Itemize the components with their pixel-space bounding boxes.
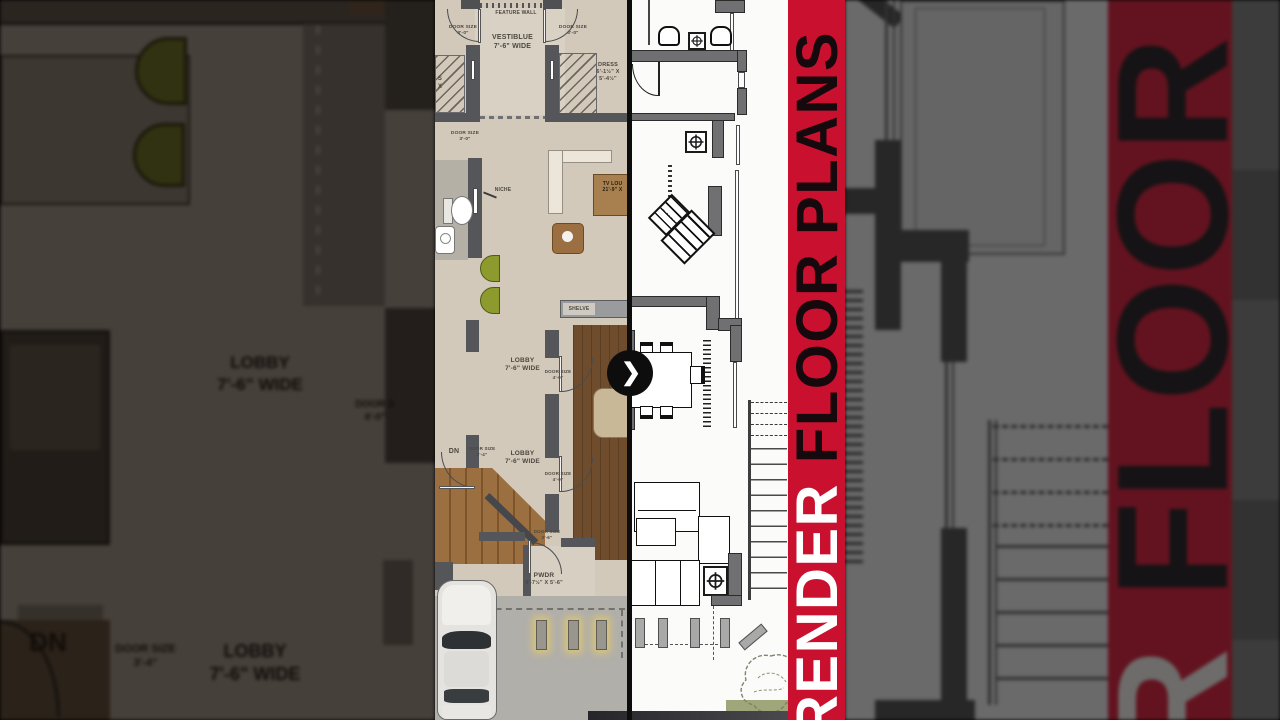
car-hood	[442, 585, 491, 625]
background-right: RFLOOR	[845, 0, 1280, 720]
wall-segment	[545, 494, 559, 532]
banner-word-floor-plans: FLOOR PLANS	[788, 31, 845, 463]
label-line: 6'-1½" X	[587, 69, 629, 76]
wall-segment	[715, 0, 745, 13]
window	[733, 362, 737, 428]
car-windshield	[442, 631, 491, 649]
car-rear-window	[444, 689, 489, 703]
label-line: 7'-6" WIDE	[495, 458, 550, 466]
room-label-lobby: LOBBY 7'-6" WIDE	[495, 450, 550, 466]
window	[550, 60, 554, 80]
wall-segment	[711, 595, 742, 606]
background-left: LOBBY 7'-6" WIDE DOOR S 4'-0" DN DOOR SI…	[0, 0, 435, 720]
darken-overlay	[0, 0, 435, 720]
driveway-line	[621, 610, 623, 658]
label-line: PWDR	[515, 572, 573, 580]
lane-marker	[690, 618, 700, 648]
video-frame: LOBBY 7'-6" WIDE DOOR S 4'-0" DN DOOR SI…	[0, 0, 1280, 720]
door-leaf	[658, 62, 660, 96]
render-banner: RENDERFLOOR PLANS	[788, 0, 845, 720]
chair	[710, 26, 732, 46]
dining-chair	[690, 366, 705, 384]
hatched-wall	[703, 340, 711, 428]
label-line: DRESS	[587, 62, 629, 69]
label-line: 3'-0"	[445, 31, 481, 37]
room-label-pwdr: PWDR 4'-7½" X 5'-6"	[515, 572, 573, 587]
wall-segment	[461, 0, 480, 9]
banner-text: RENDERFLOOR PLANS	[791, 31, 845, 720]
sofa	[548, 150, 563, 214]
door-size-label: DOOR SIZE 4'-0"	[543, 369, 573, 380]
door-size-label: DOOR SIZE 3'-0"	[555, 25, 591, 37]
door-size-label: DOOR SIZE 2'-6"	[531, 529, 563, 540]
chair	[658, 26, 680, 46]
driveway-line	[640, 644, 718, 645]
label-line: X	[435, 84, 445, 92]
lane-marker	[720, 618, 730, 648]
door-leaf	[528, 540, 531, 574]
cad-floor-plan[interactable]	[630, 0, 788, 720]
label-line: DOOR SIZE	[543, 369, 573, 375]
rendered-floor-plan[interactable]: FEATURE WALL DOOR SIZE 3'-0" DOOR SIZE 3…	[435, 0, 630, 720]
sofa-line	[638, 510, 696, 511]
tree	[736, 648, 788, 720]
chaise	[698, 516, 730, 564]
driveway-line	[475, 608, 625, 610]
slider-button[interactable]: ❯	[607, 350, 653, 396]
feature-wall	[480, 3, 543, 8]
sofa-cushion	[630, 560, 656, 606]
wall-segment	[545, 113, 630, 122]
wall-segment	[730, 325, 742, 362]
wall-segment	[435, 113, 480, 122]
wall-segment	[543, 0, 562, 9]
car-roof	[444, 651, 489, 687]
driveway-line	[713, 606, 714, 660]
green-chair	[480, 287, 500, 314]
window	[736, 125, 740, 165]
room-label-lobby: LOBBY 7'-6" WIDE	[495, 357, 550, 373]
label-line: S	[435, 76, 445, 84]
ceiling-fan-symbol	[703, 566, 728, 596]
label-line: 3'-0"	[555, 31, 591, 37]
niche-slot	[473, 188, 478, 214]
room-label-vestibule: VESTIBLUE 7'-6" WIDE	[485, 34, 540, 52]
label-line: DOOR SIZE	[531, 529, 563, 535]
room-label-cut: S X	[435, 76, 445, 91]
window	[471, 60, 475, 80]
label-line: LOBBY	[495, 450, 550, 458]
door-size-label: DOOR SIZE 3'-0"	[445, 25, 481, 37]
lane-marker	[738, 624, 767, 651]
window	[735, 170, 739, 328]
dining-chair	[660, 406, 673, 419]
driveway-post	[536, 620, 547, 650]
wall-segment	[712, 120, 724, 158]
bottom-shadow-bar	[588, 711, 788, 720]
label-line: 4'-0"	[543, 375, 573, 381]
wall-segment	[630, 50, 740, 62]
wall-segment	[561, 538, 595, 547]
threshold	[480, 116, 545, 119]
door-size-label: DOOR SIZE 3'-4"	[467, 446, 497, 457]
shelve-label: SHELVE	[563, 306, 595, 312]
label-line: 3'-4"	[467, 452, 497, 458]
stairs-dashed-tread	[751, 424, 787, 425]
lane-marker	[658, 618, 668, 648]
banner-word-render: RENDER	[788, 483, 845, 720]
label-line: 3'-0"	[447, 137, 483, 143]
wall-segment	[545, 45, 559, 119]
label-line: 2'-6"	[531, 535, 563, 541]
wall-segment	[545, 330, 559, 358]
label-line: 4'-7½" X 5'-6"	[515, 580, 573, 587]
wall-segment	[737, 88, 747, 115]
door-arc	[632, 64, 658, 96]
label-line: VESTIBLUE	[485, 34, 540, 43]
car-trunk	[442, 705, 491, 719]
tv-lounge-label: TV LOU 21'-9" X	[597, 181, 628, 194]
dining-chair	[640, 406, 653, 419]
ceiling-fan-symbol	[688, 32, 706, 50]
stairs	[751, 448, 787, 602]
label-line: DOOR SIZE	[543, 471, 573, 477]
sofa-cushion	[680, 560, 700, 606]
label-line: LOBBY	[495, 357, 550, 365]
wall-segment	[728, 553, 742, 600]
sofa-cushion	[655, 560, 681, 606]
door-size-label: DOOR SIZE 3'-0"	[447, 131, 483, 143]
green-chair	[480, 255, 500, 282]
ottoman	[636, 518, 676, 546]
wall-line	[648, 0, 650, 45]
chevron-right-icon: ❯	[621, 361, 641, 385]
room-label-dress: DRESS 6'-1½" X 5'-4½"	[587, 62, 629, 83]
driveway-post	[568, 620, 579, 650]
toilet	[451, 196, 473, 225]
wall-segment	[466, 320, 479, 352]
driveway-post	[596, 620, 607, 650]
darken-overlay	[845, 0, 1280, 720]
label-line: 4'-0"	[543, 477, 573, 483]
door-size-label: DOOR SIZE 4'-0"	[543, 471, 573, 482]
dn-label: DN	[443, 448, 465, 457]
stairs-dashed-tread	[751, 413, 787, 414]
label-line: DOOR SIZE	[467, 446, 497, 452]
wall-segment	[630, 296, 710, 307]
stairs-dashed-tread	[751, 402, 787, 403]
window	[738, 72, 745, 88]
ceiling-fan-symbol	[685, 131, 707, 153]
door-leaf	[439, 486, 475, 489]
label-line: 7'-6" WIDE	[495, 365, 550, 373]
sink-basin	[440, 233, 451, 244]
wall-segment	[466, 45, 480, 119]
lane-marker	[635, 618, 645, 648]
label-line: 5'-4½"	[587, 76, 629, 83]
stairs-dashed-tread	[751, 435, 787, 436]
tray	[562, 231, 573, 242]
label-line: 7'-6" WIDE	[485, 43, 540, 52]
niche-label: NICHE	[490, 187, 516, 193]
wall-segment	[737, 50, 747, 72]
feature-wall-label: FEATURE WALL	[486, 10, 546, 16]
wall-segment	[479, 532, 525, 541]
car	[437, 580, 497, 720]
label-line: 21'-9" X	[597, 187, 628, 193]
wall-segment	[545, 394, 559, 458]
